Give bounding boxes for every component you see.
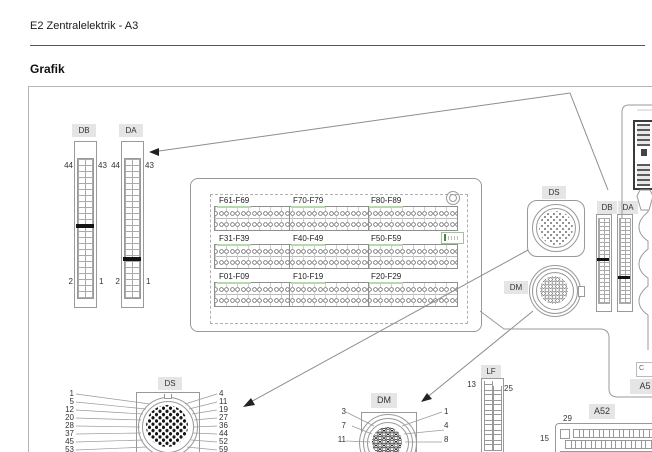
pin-number: 59: [219, 446, 241, 452]
fuse-strip-divider: [289, 245, 290, 268]
db-large-coding-bar: [76, 224, 94, 228]
dm-detail-left-pins: 3711: [332, 408, 346, 444]
screw-icon: [446, 191, 460, 205]
db-small-coding-bar: [597, 258, 609, 261]
pin-number: 7: [332, 422, 346, 430]
db-large-pin-2: 2: [66, 278, 73, 286]
fuse-strip-divider: [368, 245, 369, 268]
da-large-pin-44: 44: [108, 162, 120, 170]
right-panel-badge: C: [636, 362, 652, 377]
relay-label: [637, 109, 652, 111]
connector-a52: [555, 423, 652, 452]
dm-pinfield: [540, 276, 568, 304]
da-large-coding-bar: [123, 257, 141, 261]
right-panel-label: A5: [630, 379, 652, 394]
connector-ds-label: DS: [542, 186, 566, 199]
section-heading: Grafik: [30, 62, 65, 76]
db-large-pinfield: [77, 158, 94, 299]
ds-pinfield: [539, 211, 573, 245]
connector-db-large-label: DB: [72, 124, 96, 137]
pin-number: 53: [52, 446, 74, 452]
ds-detail-label: DS: [158, 377, 182, 390]
dm-detail-right-pins: 148: [444, 408, 458, 444]
relay-block: [633, 120, 652, 190]
fuse-group-label: F50-F59: [369, 235, 403, 246]
page: E2 Zentralelektrik - A3 Grafik DB 44 43 …: [0, 0, 652, 452]
connector-da-small-label: DA: [618, 201, 638, 214]
pin-number: 3: [332, 408, 346, 416]
da-large-pin-43: 43: [145, 162, 154, 170]
fuse-group-label: F31-F39: [217, 235, 251, 246]
a52-pin-29: 29: [563, 415, 572, 423]
da-small-coding-bar: [618, 276, 630, 279]
connector-a52-label: A52: [589, 404, 615, 419]
db-large-pin-1: 1: [99, 278, 103, 286]
pin-number: 11: [332, 436, 346, 444]
da-large-pin-2: 2: [113, 278, 120, 286]
dm-detail-pinfield: [372, 427, 402, 452]
da-large-pin-1: 1: [146, 278, 150, 286]
fuse-strip-divider: [289, 207, 290, 230]
connector-da-large-label: DA: [119, 124, 143, 137]
connector-da-small: [617, 214, 633, 312]
a52-pin-15: 15: [540, 435, 549, 443]
fuse-strip-divider: [368, 207, 369, 230]
pin-number: 4: [444, 422, 458, 430]
da-large-pinfield: [124, 158, 141, 299]
connector-dm-label: DM: [504, 281, 528, 294]
db-large-pin-44: 44: [61, 162, 73, 170]
fuse-strip-row3: [214, 282, 458, 307]
pin-number: 1: [444, 408, 458, 416]
fuse-indicator-badge: [441, 232, 464, 244]
lf-pin-25: 25: [504, 385, 513, 393]
fuse-group-label: F61-F69: [217, 197, 251, 208]
connector-db-small-label: DB: [597, 201, 617, 214]
fuse-strip-divider: [289, 283, 290, 306]
fuse-group-label: F10-F19: [291, 273, 325, 284]
ds-detail-right-pins: 411192736445259: [219, 390, 241, 452]
connector-db-small: [596, 214, 612, 312]
ds-detail-pinfield: [146, 405, 188, 447]
fuse-group-label: F70-F79: [291, 197, 325, 208]
ds-detail-left-pins: 15122028374553: [52, 390, 74, 452]
dm-tab: [578, 286, 585, 297]
fuse-group-label: F01-F09: [217, 273, 251, 284]
lf-pin-13: 13: [466, 381, 476, 389]
pin-number: 8: [444, 436, 458, 444]
fuse-group-label: F40-F49: [291, 235, 325, 246]
connector-da-large: [121, 141, 144, 308]
fuse-strip-row1: [214, 206, 458, 231]
db-large-pin-43: 43: [98, 162, 107, 170]
dm-detail-label: DM: [371, 393, 397, 408]
fuse-group-label: F80-F89: [369, 197, 403, 208]
fuse-strip-row2: [214, 244, 458, 269]
page-title: E2 Zentralelektrik - A3: [30, 20, 138, 32]
connector-lf-label: LF: [481, 365, 501, 378]
fuse-group-label: F20-F29: [369, 273, 403, 284]
ds-detail-notch: [164, 394, 172, 399]
connector-lf: [481, 378, 504, 452]
fuse-strip-divider: [368, 283, 369, 306]
header-divider: [30, 45, 645, 46]
